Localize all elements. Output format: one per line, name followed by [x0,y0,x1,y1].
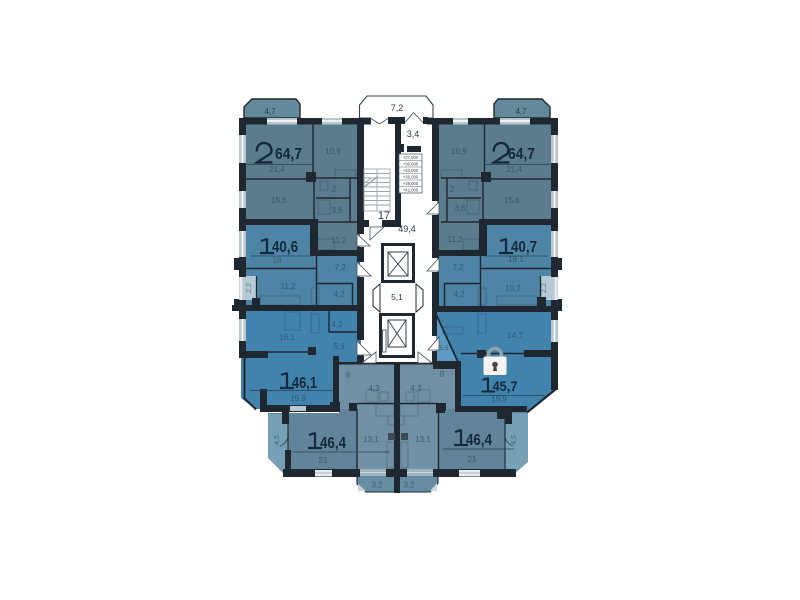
svg-text:4,5: 4,5 [274,435,281,445]
svg-text:5,5: 5,5 [439,345,448,352]
svg-text:4,7: 4,7 [515,107,527,116]
svg-text:49,4: 49,4 [398,224,416,234]
svg-text:18: 18 [273,256,282,265]
svg-text:17: 17 [378,210,390,222]
svg-text:45,7: 45,7 [493,378,518,394]
svg-text:10,9: 10,9 [451,147,467,156]
svg-text:3,2: 3,2 [371,481,383,490]
svg-text:4,3: 4,3 [410,384,422,393]
svg-text:21,4: 21,4 [506,165,522,174]
svg-text:+27,000: +27,000 [403,155,419,160]
svg-text:14,7: 14,7 [507,331,523,340]
svg-text:10,9: 10,9 [325,147,341,156]
svg-text:21,4: 21,4 [269,165,285,174]
svg-text:3,6: 3,6 [454,204,466,213]
svg-text:5,9: 5,9 [333,342,345,351]
svg-text:16,1: 16,1 [279,333,295,342]
svg-text:7,2: 7,2 [334,263,346,272]
svg-text:4,2: 4,2 [453,290,465,299]
svg-text:64,7: 64,7 [275,146,302,163]
svg-text:19,9: 19,9 [290,394,306,403]
svg-text:5,1: 5,1 [391,292,403,302]
svg-text:40,7: 40,7 [511,239,537,256]
svg-text:4,7: 4,7 [264,107,276,116]
svg-text:7,2: 7,2 [452,263,464,272]
svg-text:21: 21 [468,455,477,464]
svg-text:11,2: 11,2 [448,235,464,244]
svg-text:2: 2 [332,185,337,194]
svg-text:+33,000: +33,000 [403,168,419,173]
svg-text:+39,000: +39,000 [403,181,419,186]
svg-text:13,1: 13,1 [415,435,431,444]
svg-text:4,2: 4,2 [331,320,343,329]
svg-text:+30,000: +30,000 [403,162,419,167]
svg-text:8: 8 [440,370,445,379]
svg-text:7,2: 7,2 [391,103,404,113]
svg-text:3,2: 3,2 [403,481,415,490]
svg-text:3,6: 3,6 [331,206,343,215]
svg-text:64,7: 64,7 [508,146,535,163]
svg-text:4,3: 4,3 [368,384,380,393]
svg-text:21: 21 [319,456,328,465]
svg-text:4,2: 4,2 [333,290,345,299]
svg-text:13,1: 13,1 [363,435,379,444]
svg-text:8: 8 [346,371,351,380]
svg-text:4,5: 4,5 [511,435,518,445]
svg-text:2,2: 2,2 [541,283,548,293]
svg-text:18,1: 18,1 [508,255,524,264]
svg-text:40,6: 40,6 [272,239,298,256]
svg-text:2,2: 2,2 [246,283,253,293]
svg-text:11,2: 11,2 [332,236,348,245]
svg-text:46,4: 46,4 [466,432,492,449]
svg-text:19,9: 19,9 [491,395,507,404]
svg-text:+42,000: +42,000 [403,188,419,193]
svg-text:+36,000: +36,000 [403,175,419,180]
svg-text:3,4: 3,4 [407,129,420,139]
svg-text:2: 2 [450,185,455,194]
svg-text:11,2: 11,2 [281,282,297,291]
svg-text:10,2: 10,2 [505,284,521,293]
svg-text:15,6: 15,6 [271,196,287,205]
svg-text:46,4: 46,4 [320,435,346,452]
svg-text:15,6: 15,6 [504,196,520,205]
svg-text:46,1: 46,1 [292,375,317,392]
